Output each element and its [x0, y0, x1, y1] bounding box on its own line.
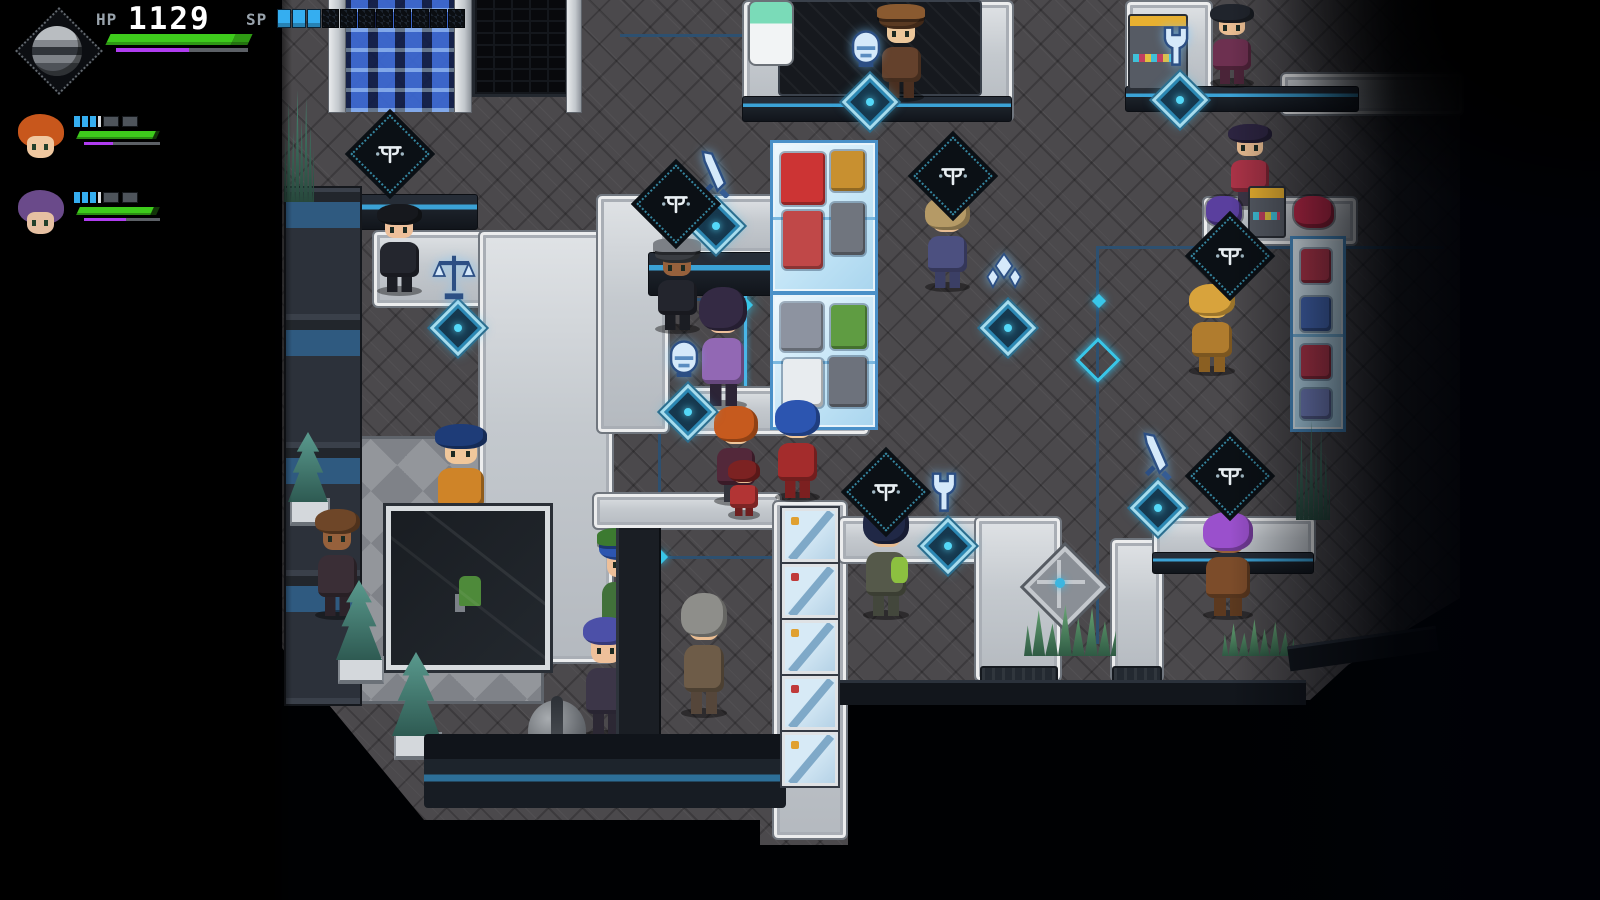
- npc-body: [318, 555, 357, 597]
- shop-item: [831, 203, 865, 255]
- wrench-icon[interactable]: [1152, 24, 1200, 76]
- shop-item: [831, 305, 867, 349]
- circuit-node: [1092, 294, 1106, 308]
- npc-hat: [877, 4, 925, 19]
- circuit-line: [1096, 246, 1444, 249]
- entity-hp-bar: [0, 24, 50, 33]
- poster-frame[interactable]: [782, 732, 838, 786]
- npc-eye: [1254, 145, 1258, 151]
- npc-eye: [597, 648, 601, 654]
- npc-eye: [1241, 145, 1245, 151]
- pod-icon[interactable]: [842, 26, 890, 78]
- npc-green-soldier[interactable]: [1438, 0, 1474, 62]
- wrench-icon[interactable]: [920, 470, 968, 522]
- npc-hair: [681, 593, 728, 637]
- crystal-cascade-decoration: [346, 0, 454, 112]
- npc-hair: [699, 287, 748, 331]
- sign-medallion: [980, 300, 1037, 357]
- shop-item: [1301, 389, 1331, 419]
- npc-eye: [390, 227, 394, 233]
- circuit-line: [620, 34, 746, 37]
- shop-glyph-icon: [927, 150, 979, 202]
- npc-body: [438, 468, 483, 508]
- shop-sign[interactable]: [1190, 436, 1269, 515]
- dark-wall-column: [616, 528, 661, 756]
- pod-icon[interactable]: [660, 336, 708, 388]
- tree-planter: [338, 656, 384, 684]
- npc-body: [684, 645, 725, 692]
- grass-tuft: [1222, 616, 1294, 656]
- npc-eye: [668, 265, 672, 271]
- npc-top-right-clerk[interactable]: [1208, 0, 1256, 88]
- npc-hair: [315, 509, 360, 535]
- wall-pillar: [328, 0, 346, 113]
- shop-item: [831, 151, 865, 191]
- shop-item: [829, 357, 867, 407]
- wall-pillar: [454, 0, 472, 113]
- shop-glyph-icon: [860, 466, 912, 518]
- floor-edge: [1287, 626, 1439, 672]
- npc-body: [730, 485, 758, 507]
- npc-hair: [1228, 124, 1271, 144]
- npc-tiny-red-npc[interactable]: [726, 458, 762, 520]
- wall-pillar: [566, 0, 582, 113]
- npc-suit-clerk[interactable]: [652, 238, 702, 334]
- npc-body: [380, 242, 419, 277]
- shop-glyph-icon: [1204, 450, 1256, 502]
- dark-doorway: [472, 0, 570, 97]
- npc-long-hair-clerk[interactable]: [374, 200, 424, 296]
- shop-item: [781, 303, 823, 351]
- npc-hair: [1210, 4, 1253, 23]
- shop-item: [783, 211, 823, 269]
- npc-eye: [403, 227, 407, 233]
- poster-frame[interactable]: [782, 564, 838, 618]
- npc-purple-spiky-npc[interactable]: [1200, 508, 1256, 620]
- case-shelf: [1293, 334, 1343, 337]
- display-case[interactable]: [1290, 236, 1346, 432]
- poster-frame[interactable]: [782, 676, 838, 730]
- poster-frame[interactable]: [782, 508, 838, 562]
- poster-frame[interactable]: [782, 620, 838, 674]
- npc-eye: [905, 31, 909, 37]
- npc-hair: [1203, 512, 1253, 550]
- shop-item: [1301, 249, 1331, 283]
- npc-hair: [435, 424, 487, 448]
- npc-body: [778, 443, 817, 481]
- entity-hp-bar: [0, 33, 50, 42]
- npc-eye: [681, 265, 685, 271]
- npc-eye: [328, 536, 332, 542]
- npc-hair: [377, 204, 422, 225]
- npc-hair: [728, 460, 760, 481]
- npc-eye: [892, 31, 896, 37]
- npc-body: [658, 280, 697, 315]
- shop-item: [781, 153, 825, 205]
- npc-body: [1213, 39, 1250, 71]
- ornamental-diamond: [1028, 548, 1094, 622]
- npc-eye: [341, 536, 345, 542]
- circuit-node: [1075, 337, 1120, 382]
- display-case[interactable]: [770, 140, 878, 294]
- shop-item: [1301, 345, 1331, 379]
- shop-glyph-icon: [364, 128, 416, 180]
- grass-planter: [0, 0, 104, 24]
- npc-body: [1442, 27, 1470, 49]
- tall-plant: [284, 80, 314, 202]
- npc-hair: [714, 406, 757, 441]
- npc-body: [1192, 322, 1233, 357]
- floor-edge: [836, 680, 1306, 705]
- merchandise-item[interactable]: [1294, 196, 1334, 228]
- npc-blue-hair-ally[interactable]: [772, 396, 822, 502]
- game-screenshot: HP 1129 SP: [0, 0, 1600, 900]
- npc-body: [702, 338, 744, 384]
- npc-eye: [466, 451, 470, 457]
- game-viewport[interactable]: [0, 0, 1600, 900]
- shop-item: [1301, 297, 1331, 331]
- crystal-icon[interactable]: [980, 252, 1028, 304]
- plant-display-case[interactable]: [386, 506, 550, 670]
- npc-body: [928, 236, 967, 272]
- npc-eye: [610, 648, 614, 654]
- shop-glyph-icon: [650, 178, 702, 230]
- npc-gray-coat-walker[interactable]: [678, 588, 730, 718]
- npc-hair: [1440, 2, 1472, 23]
- shop-sign[interactable]: [350, 114, 429, 193]
- npc-body: [1206, 557, 1250, 597]
- sword-icon[interactable]: [1130, 432, 1178, 484]
- npc-eye: [451, 451, 455, 457]
- shop-glyph-icon: [1204, 230, 1256, 282]
- npc-hair: [775, 400, 820, 436]
- npc-eye: [1236, 25, 1240, 31]
- vending-capsule-machine: [748, 0, 794, 66]
- npc-bag: [891, 557, 908, 584]
- scales-icon[interactable]: [430, 252, 478, 304]
- ledge-bench: [424, 734, 786, 808]
- npc-eye: [1223, 25, 1227, 31]
